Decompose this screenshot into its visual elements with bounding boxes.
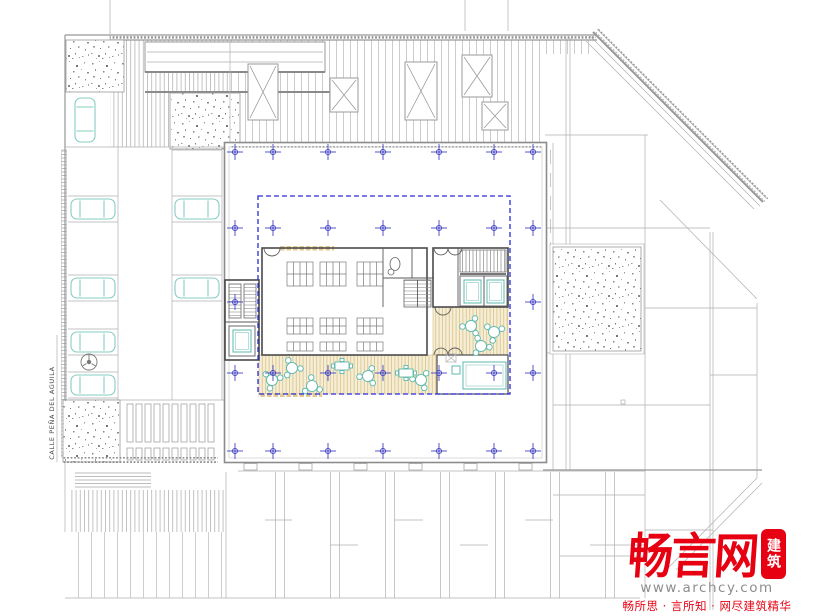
watermark: 畅言网 建筑 www.archcy.com 畅所思 · 言所知 · 网尽建筑精华 xyxy=(601,529,813,614)
turning-circle-icon xyxy=(81,354,97,370)
watermark-logo-text: 畅言网 xyxy=(627,535,759,581)
cafe-room xyxy=(437,354,508,394)
watermark-slogan: 畅所思 · 言所知 · 网尽建筑精华 xyxy=(601,598,813,614)
site-plan-drawing xyxy=(0,0,818,616)
parking-area xyxy=(62,98,230,463)
floor-plan-page: CALLE PEÑA DEL AGUILA 畅言网 建筑 www.archcy.… xyxy=(0,0,818,616)
edge-tabs xyxy=(244,464,532,471)
boundary-hatch-bottom xyxy=(62,457,218,463)
ramp-hatch xyxy=(75,472,151,490)
toilet-icon xyxy=(388,269,394,275)
street-label: CALLE PEÑA DEL AGUILA xyxy=(48,366,56,459)
street-edge xyxy=(57,35,67,462)
stair-icon xyxy=(460,250,506,272)
paving-strips xyxy=(238,472,645,598)
pergola-slats xyxy=(127,404,214,460)
stair-icon xyxy=(244,284,256,318)
watermark-badge: 建筑 xyxy=(761,529,786,579)
canopy-dash-strip xyxy=(278,246,334,252)
